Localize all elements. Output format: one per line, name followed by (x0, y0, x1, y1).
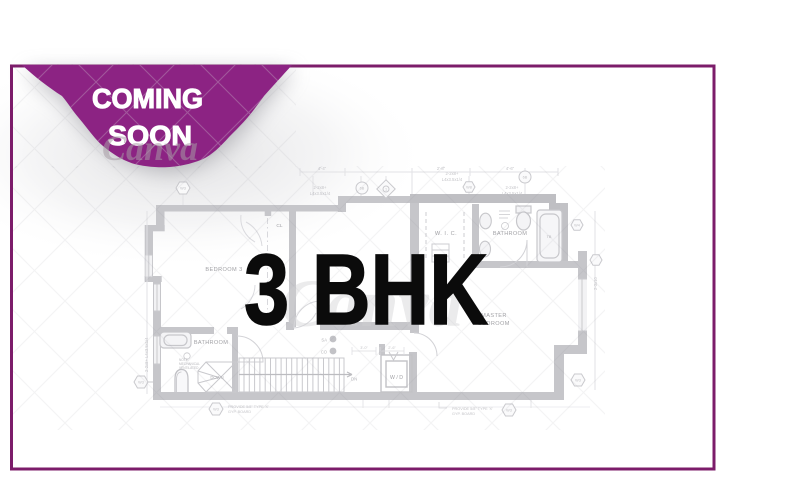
svg-text:Canva: Canva (102, 128, 198, 168)
svg-text:3 BHK: 3 BHK (244, 234, 488, 346)
svg-text:COMING: COMING (92, 83, 203, 114)
